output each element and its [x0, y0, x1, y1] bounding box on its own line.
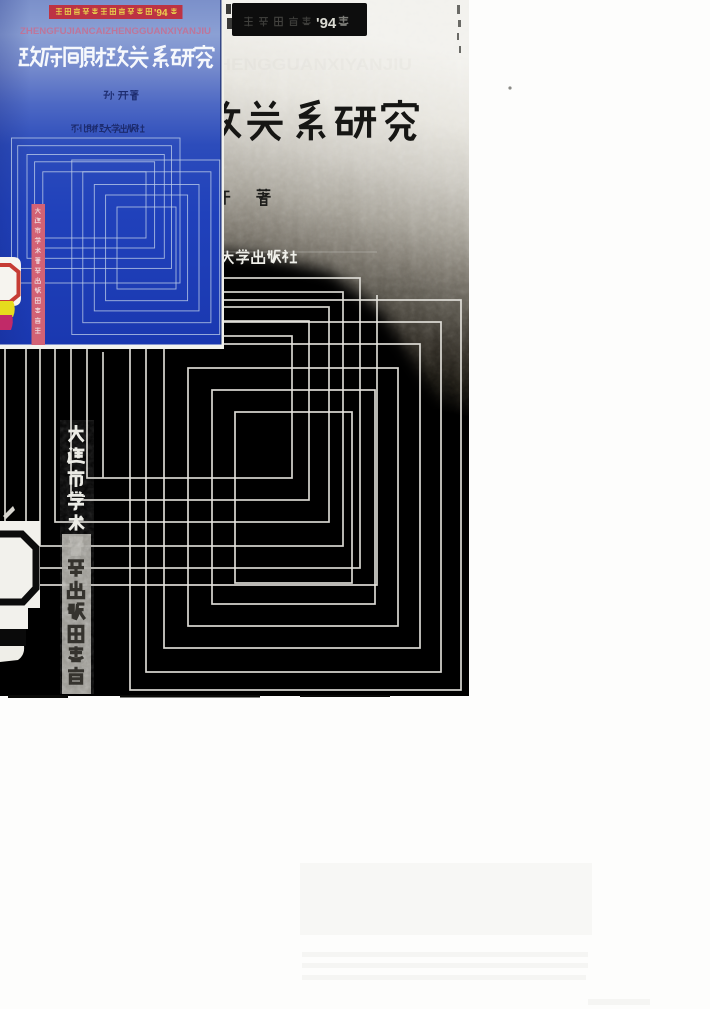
svg-text:ZHENGFUJIANCAIZHENGGUANXIYANJI: ZHENGFUJIANCAIZHENGGUANXIYANJIU [20, 26, 211, 36]
svg-text:'94: '94 [316, 15, 337, 32]
svg-text:'94: '94 [154, 8, 168, 19]
